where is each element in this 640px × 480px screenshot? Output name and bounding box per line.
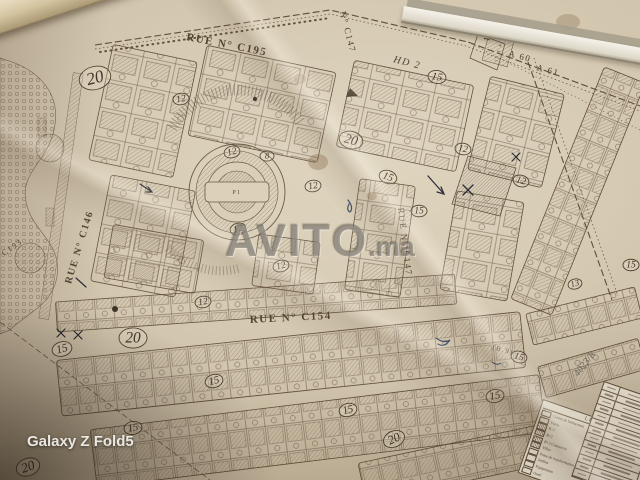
photo-of-plan: RUE N° C195 N° C147 HD 2 10 12 8 4 A 60 … [0, 0, 640, 480]
device-watermark: Galaxy Z Fold5 [27, 433, 134, 450]
avito-watermark-text: AVITO [225, 215, 368, 266]
avito-watermark: AVITO.ma [225, 215, 415, 267]
avito-watermark-suffix: .ma [368, 232, 415, 262]
